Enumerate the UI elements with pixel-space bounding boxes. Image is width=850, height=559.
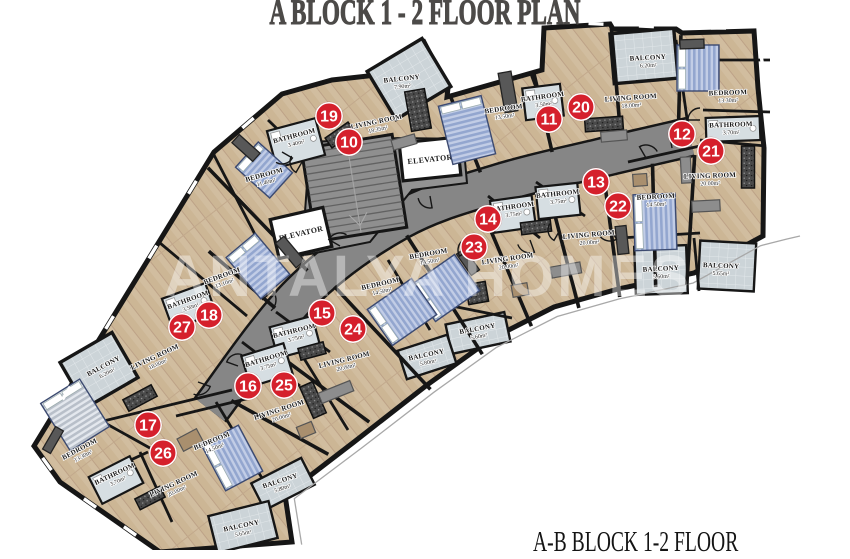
svg-text:3.70m²: 3.70m² <box>723 130 740 137</box>
svg-text:27: 27 <box>173 320 191 337</box>
svg-text:21: 21 <box>702 144 720 161</box>
svg-text:5.60m²: 5.60m² <box>653 274 670 281</box>
svg-text:14: 14 <box>479 212 497 229</box>
svg-text:20: 20 <box>572 100 590 117</box>
svg-text:19: 19 <box>320 109 338 126</box>
svg-text:16: 16 <box>239 379 257 396</box>
svg-text:22: 22 <box>609 199 627 216</box>
svg-text:15: 15 <box>313 306 331 323</box>
svg-text:BALCONY: BALCONY <box>703 261 740 270</box>
svg-text:20.00m²: 20.00m² <box>700 181 720 188</box>
svg-text:18: 18 <box>200 308 218 325</box>
svg-text:17: 17 <box>139 418 157 435</box>
svg-text:BEDROOM: BEDROOM <box>709 88 748 97</box>
svg-text:6.20m²: 6.20m² <box>640 63 657 70</box>
svg-text:5.65m²: 5.65m² <box>712 271 729 278</box>
svg-text:24: 24 <box>344 322 362 339</box>
svg-text:BATHROOM: BATHROOM <box>709 120 753 130</box>
svg-text:13: 13 <box>587 175 605 192</box>
svg-text:25: 25 <box>275 378 293 395</box>
svg-text:11: 11 <box>541 112 558 129</box>
svg-text:13.30m²: 13.30m² <box>718 98 738 105</box>
svg-text:12: 12 <box>673 127 691 144</box>
svg-text:14.50m²: 14.50m² <box>646 202 666 209</box>
svg-text:23: 23 <box>465 240 483 257</box>
svg-text:10: 10 <box>340 135 358 152</box>
svg-text:26: 26 <box>154 446 172 463</box>
